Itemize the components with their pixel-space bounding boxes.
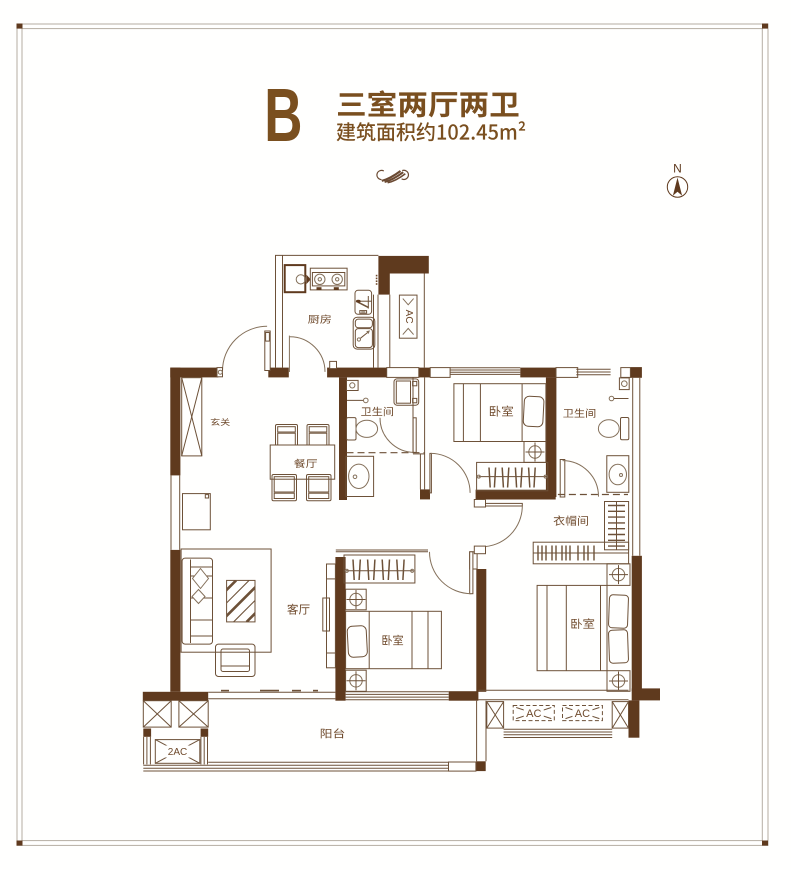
svg-text:2AC: 2AC [168,747,187,758]
svg-text:AC: AC [403,310,414,324]
svg-text:AC: AC [575,708,590,720]
svg-text:N: N [673,162,682,176]
svg-text:B: B [264,73,302,158]
svg-text:AC: AC [526,708,541,720]
